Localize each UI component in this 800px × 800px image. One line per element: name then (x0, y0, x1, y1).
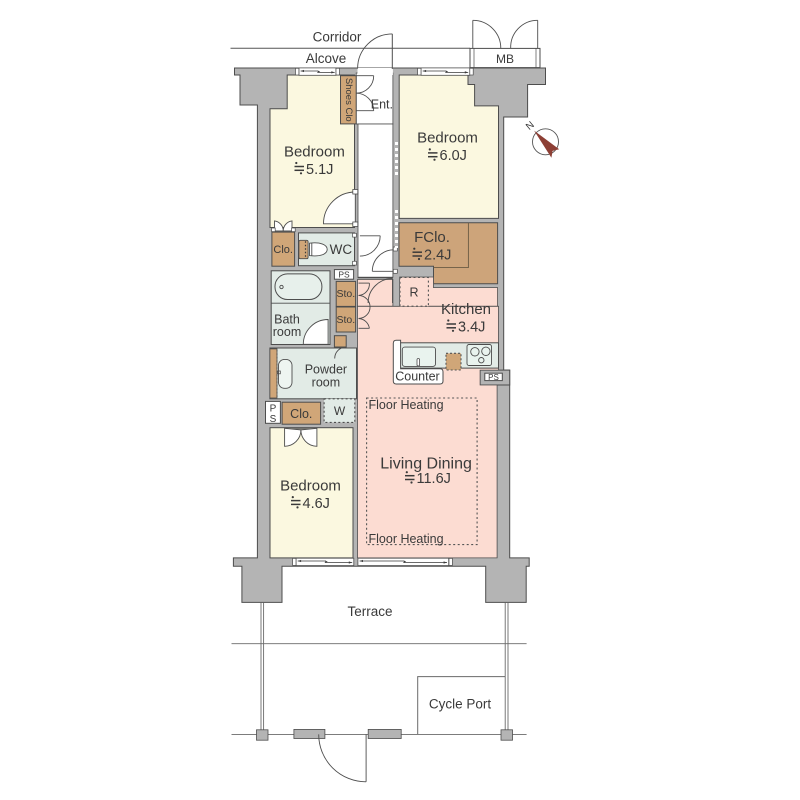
svg-text:2.4J: 2.4J (424, 248, 451, 264)
svg-text:Terrace: Terrace (347, 604, 392, 619)
svg-text:room: room (273, 325, 301, 339)
svg-text:Clo.: Clo. (290, 407, 312, 421)
svg-text:PS: PS (488, 373, 499, 382)
svg-text:R: R (409, 286, 418, 300)
svg-text:Floor Heating: Floor Heating (369, 532, 444, 546)
svg-text:room: room (312, 375, 340, 389)
svg-text:Kitchen: Kitchen (441, 301, 491, 318)
svg-text:W: W (334, 404, 346, 418)
svg-text:Shoes Clo: Shoes Clo (343, 78, 354, 122)
svg-text:Powder: Powder (305, 362, 347, 376)
svg-text:6.0J: 6.0J (440, 148, 467, 164)
svg-text:S: S (270, 414, 277, 425)
svg-text:4.6J: 4.6J (303, 496, 330, 512)
svg-text:Living Dining: Living Dining (380, 456, 472, 473)
svg-text:Corridor: Corridor (313, 30, 362, 45)
svg-text:Sto.: Sto. (336, 314, 355, 326)
svg-text:Counter: Counter (395, 370, 439, 384)
svg-text:Clo.: Clo. (273, 244, 293, 256)
svg-text:Alcove: Alcove (306, 51, 347, 66)
svg-text:Floor Heating: Floor Heating (369, 398, 444, 412)
svg-text:Ent.: Ent. (371, 98, 393, 112)
svg-text:5.1J: 5.1J (306, 162, 333, 178)
svg-text:PS: PS (338, 270, 350, 280)
svg-text:Bedroom: Bedroom (417, 130, 478, 147)
svg-text:Sto.: Sto. (336, 288, 355, 300)
svg-text:Cycle Port: Cycle Port (429, 697, 492, 712)
svg-text:FClo.: FClo. (414, 229, 450, 246)
svg-text:P: P (270, 404, 277, 415)
svg-text:11.6J: 11.6J (417, 471, 451, 487)
svg-text:3.4J: 3.4J (458, 319, 485, 335)
svg-text:Bedroom: Bedroom (280, 477, 341, 494)
svg-text:Bedroom: Bedroom (284, 143, 345, 160)
svg-text:WC: WC (330, 242, 353, 257)
svg-text:MB: MB (496, 52, 514, 66)
